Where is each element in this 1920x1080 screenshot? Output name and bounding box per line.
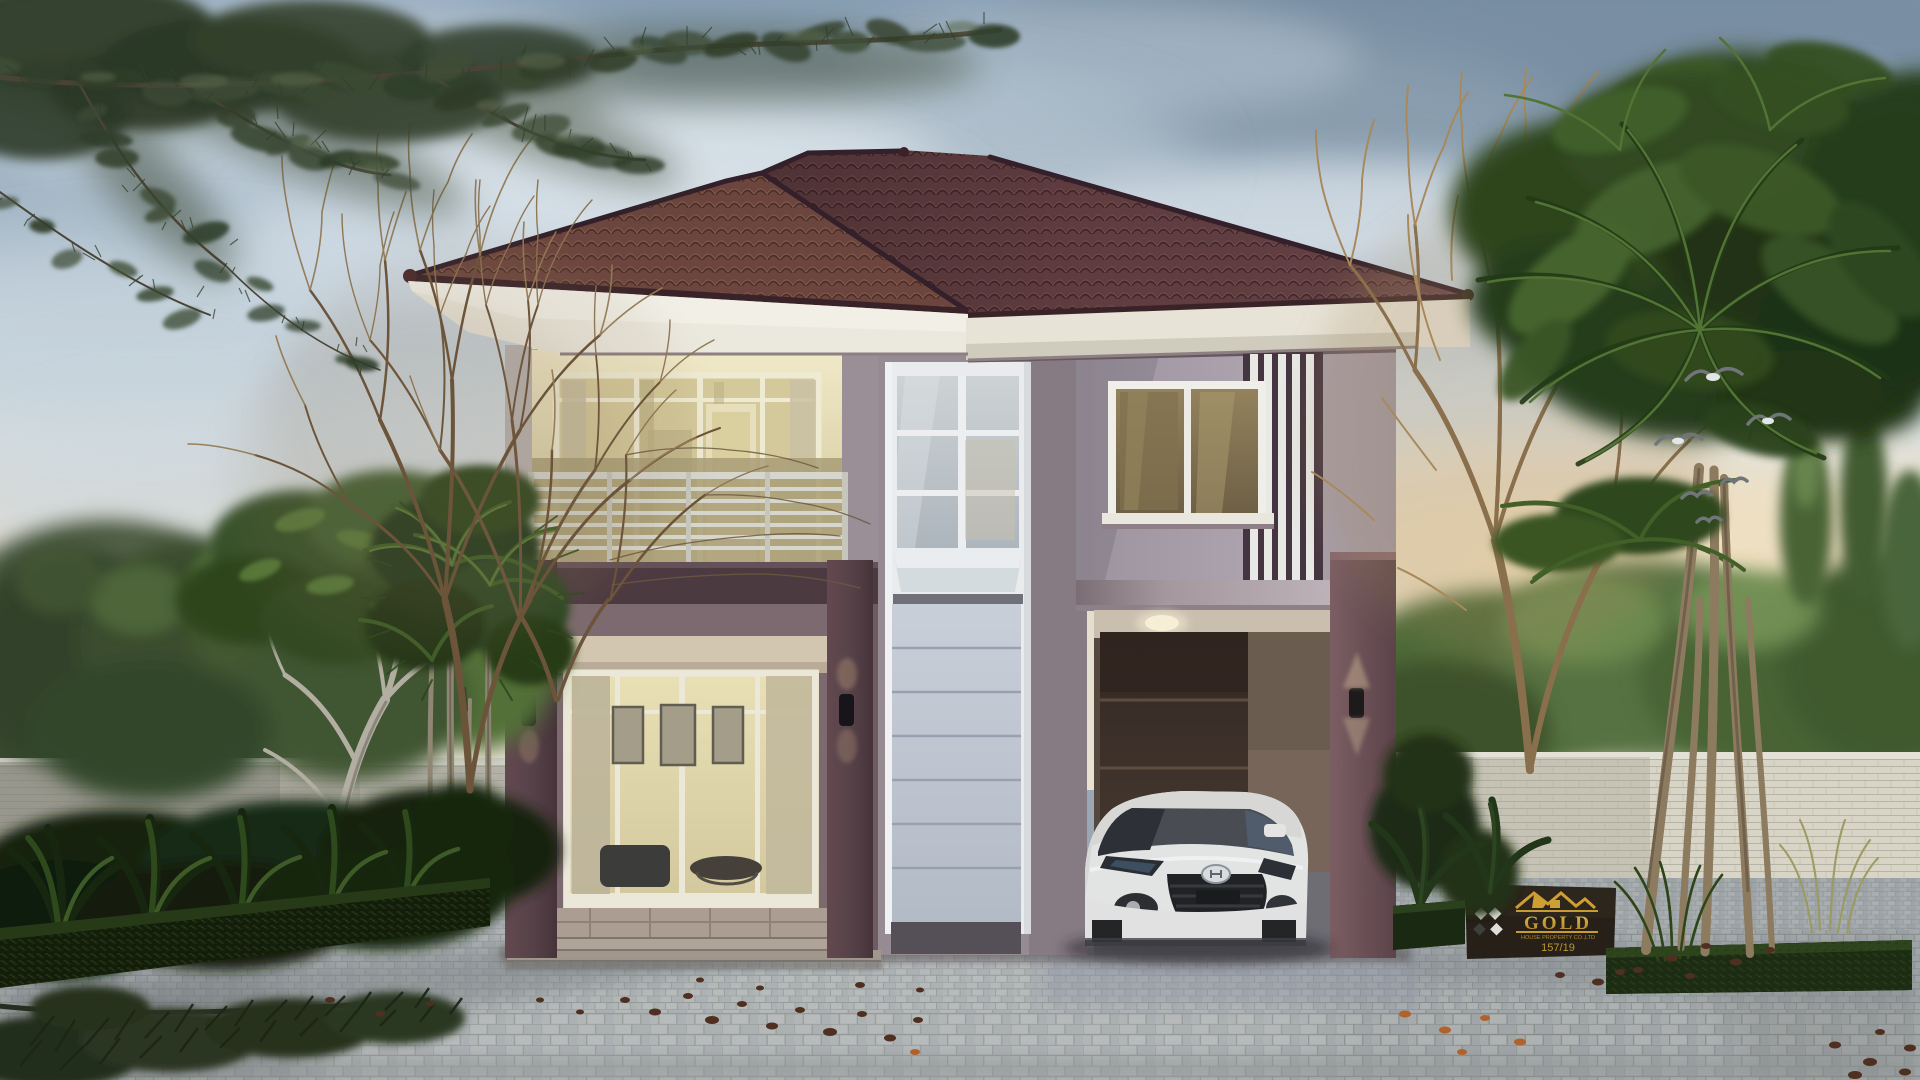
svg-text:HOUSE PROPERTY CO.,LTD: HOUSE PROPERTY CO.,LTD [1521,935,1595,941]
svg-text:GOLD: GOLD [1524,913,1592,934]
svg-text:157/19: 157/19 [1541,942,1575,954]
